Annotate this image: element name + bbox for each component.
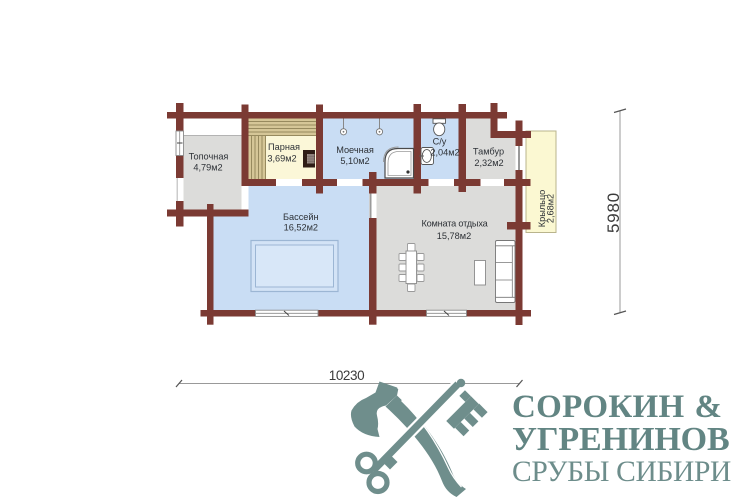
svg-text:Тамбур: Тамбур xyxy=(473,147,504,157)
svg-text:СОРОКИН&: СОРОКИН& xyxy=(512,389,722,425)
svg-text:2,04м2: 2,04м2 xyxy=(430,148,459,158)
svg-text:4,79м2: 4,79м2 xyxy=(193,163,222,173)
svg-text:5,10м2: 5,10м2 xyxy=(340,156,369,166)
svg-text:2,32м2: 2,32м2 xyxy=(474,158,503,168)
svg-text:Парная: Парная xyxy=(268,142,300,152)
svg-text:СРУБЫ СИБИРИ: СРУБЫ СИБИРИ xyxy=(512,456,731,488)
svg-text:Комната отдыха: Комната отдыха xyxy=(421,219,488,229)
svg-text:Моечная: Моечная xyxy=(336,145,374,155)
svg-text:С/у: С/у xyxy=(433,137,447,147)
svg-text:2,68м2: 2,68м2 xyxy=(546,194,556,223)
svg-text:3,69м2: 3,69м2 xyxy=(267,154,296,164)
svg-text:УГРЕНИНОВ: УГРЕНИНОВ xyxy=(512,421,730,458)
svg-text:Топочная: Топочная xyxy=(189,152,229,162)
svg-text:15,78м2: 15,78м2 xyxy=(437,231,471,241)
svg-text:Бассейн: Бассейн xyxy=(283,212,319,222)
svg-text:16,52м2: 16,52м2 xyxy=(284,223,318,233)
svg-text:10230: 10230 xyxy=(329,368,365,383)
svg-text:5980: 5980 xyxy=(604,192,623,233)
